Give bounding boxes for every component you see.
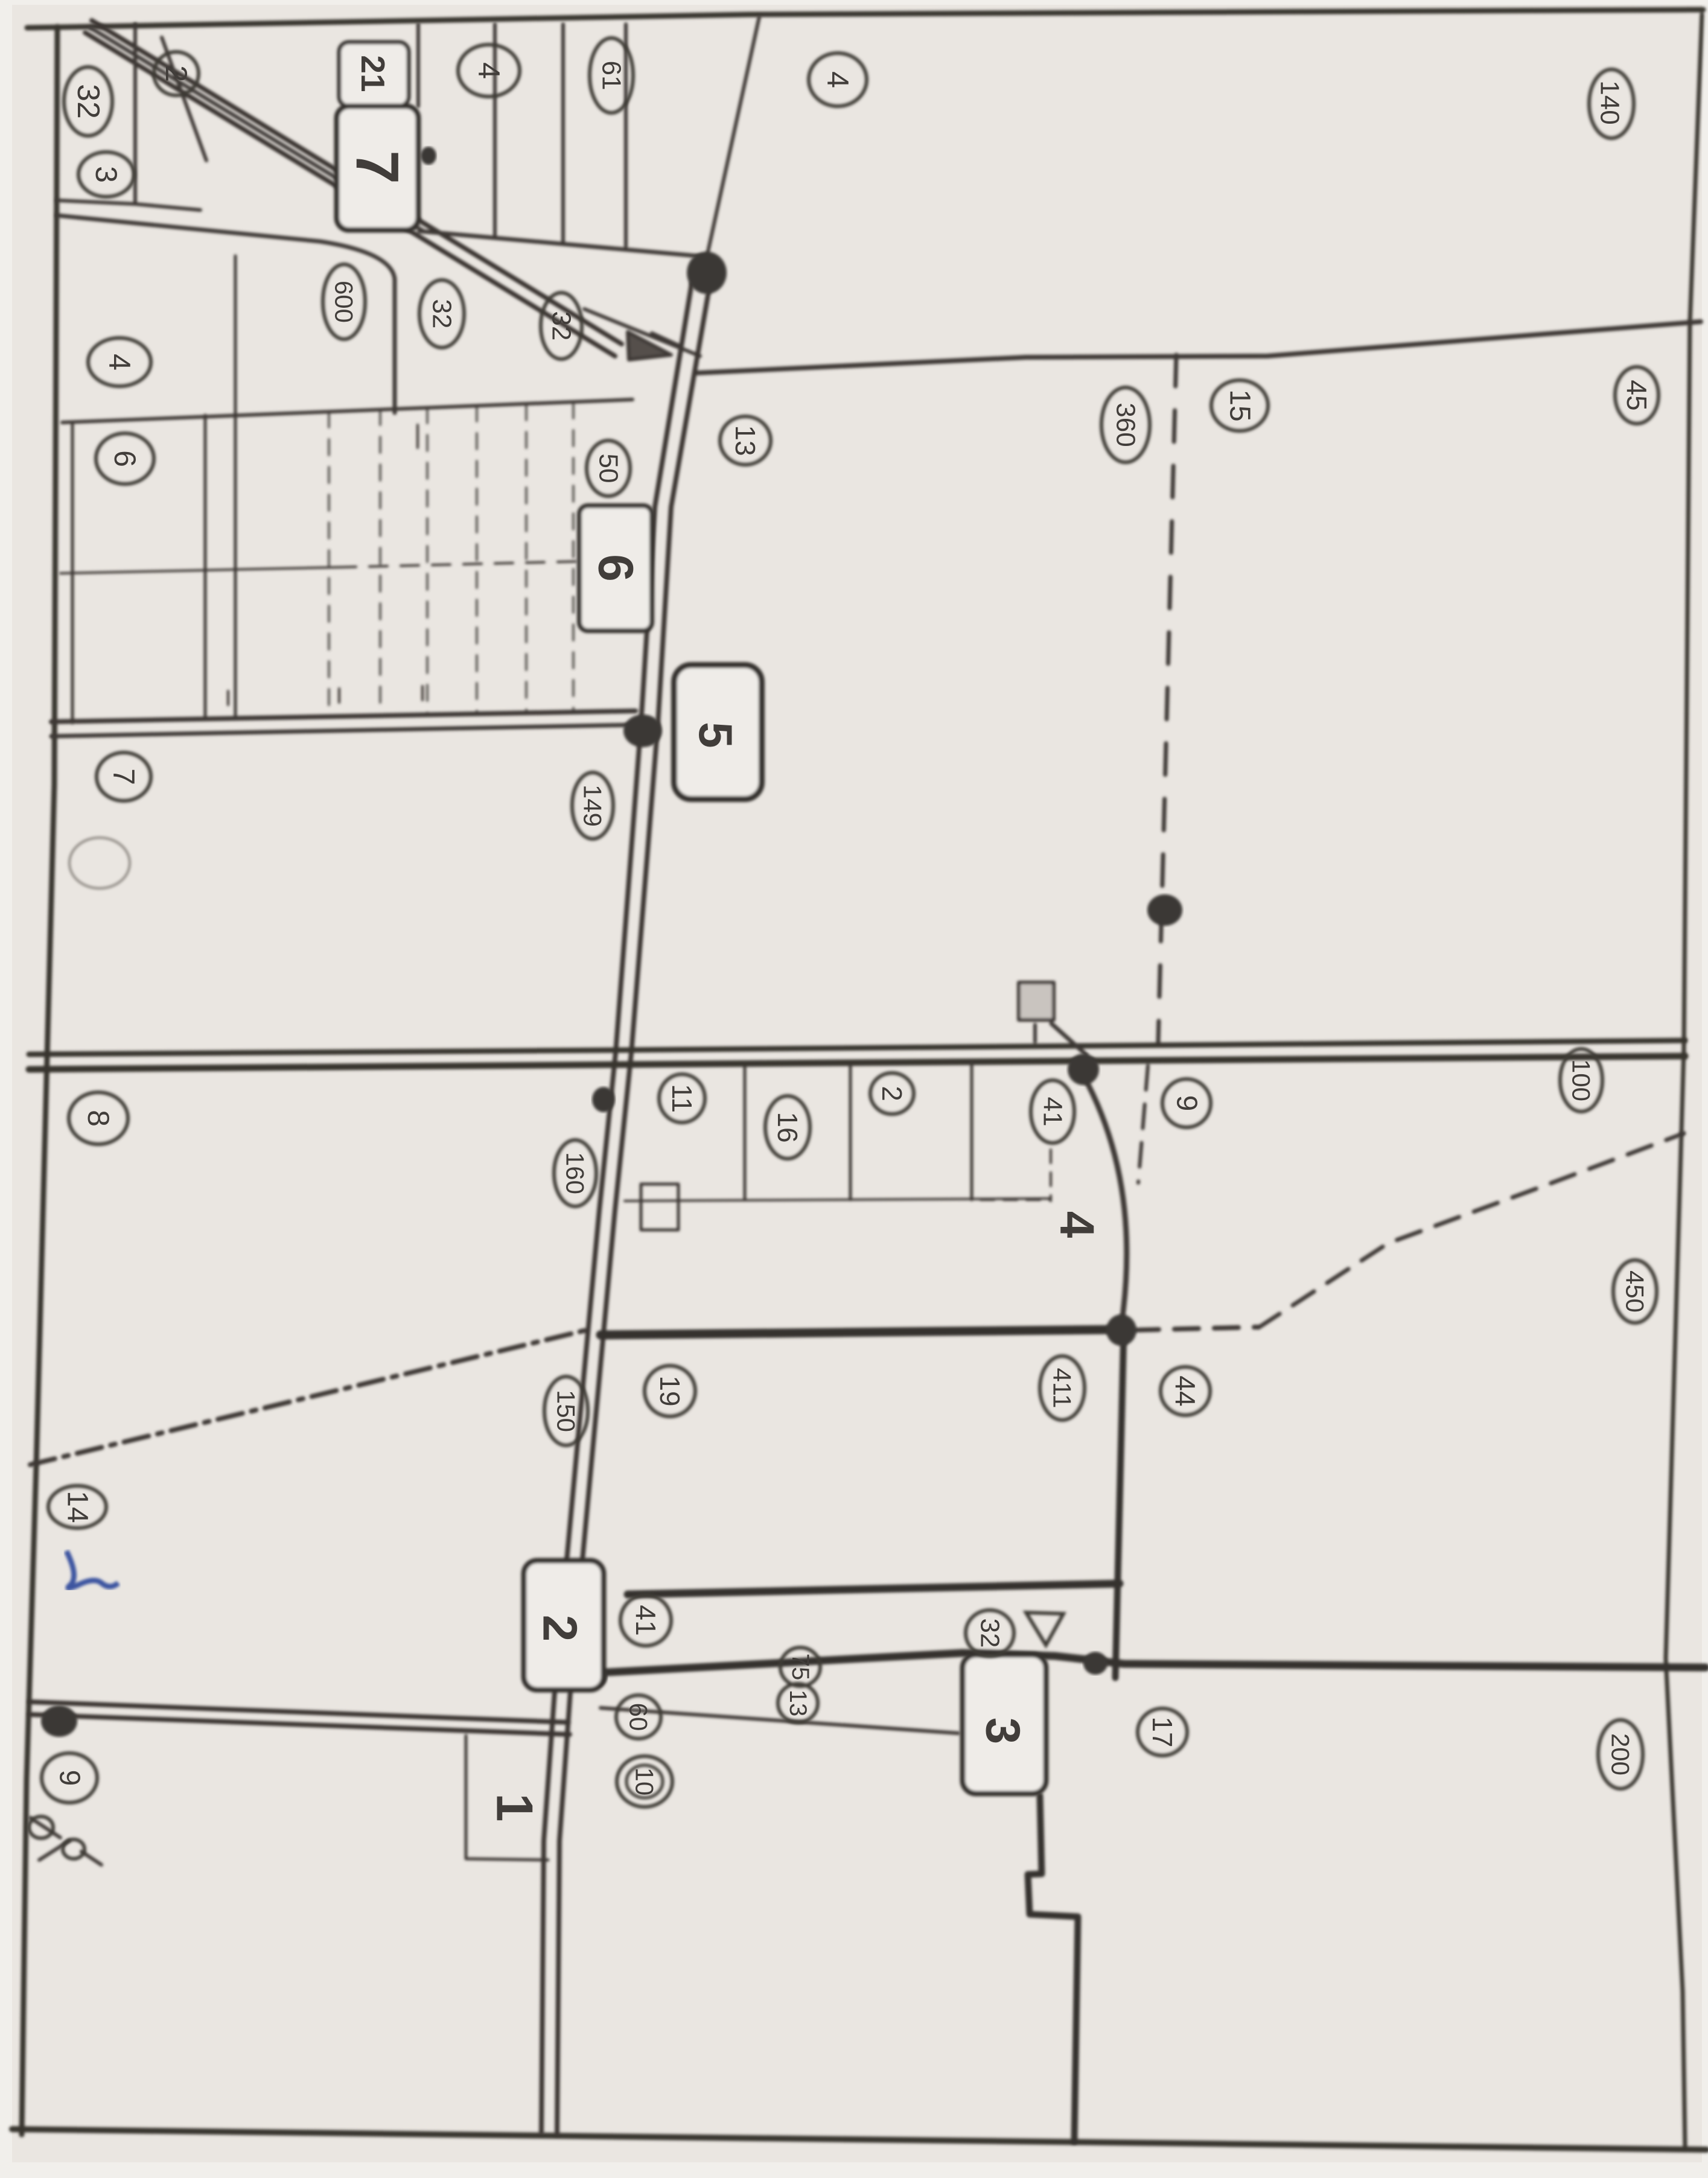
svg-text:11: 11 xyxy=(666,1084,698,1113)
svg-text:32: 32 xyxy=(975,1619,1005,1648)
svg-text:32: 32 xyxy=(547,311,576,341)
svg-text:100: 100 xyxy=(1567,1059,1596,1101)
svg-text:6: 6 xyxy=(588,554,643,582)
svg-text:2: 2 xyxy=(534,1615,587,1642)
svg-text:13: 13 xyxy=(785,1690,811,1717)
svg-text:3: 3 xyxy=(89,166,123,183)
svg-text:2: 2 xyxy=(159,65,193,82)
svg-text:17: 17 xyxy=(1147,1716,1178,1747)
svg-text:5: 5 xyxy=(689,722,742,748)
svg-text:9: 9 xyxy=(54,1770,86,1786)
svg-text:149: 149 xyxy=(579,785,607,827)
svg-text:10: 10 xyxy=(631,1768,659,1796)
svg-text:4: 4 xyxy=(472,62,506,79)
svg-text:600: 600 xyxy=(330,281,358,323)
svg-text:9: 9 xyxy=(1171,1095,1203,1112)
svg-text:32: 32 xyxy=(427,299,457,329)
svg-text:7: 7 xyxy=(107,768,141,785)
svg-text:3: 3 xyxy=(977,1718,1030,1745)
svg-text:75: 75 xyxy=(787,1654,814,1681)
svg-text:4: 4 xyxy=(103,354,136,371)
svg-text:15: 15 xyxy=(1224,389,1256,421)
svg-text:200: 200 xyxy=(1607,1733,1635,1775)
svg-text:150: 150 xyxy=(552,1390,581,1432)
svg-text:4: 4 xyxy=(821,71,855,88)
svg-text:411: 411 xyxy=(1048,1368,1077,1409)
svg-text:13: 13 xyxy=(730,425,761,456)
svg-text:8: 8 xyxy=(81,1110,115,1127)
svg-text:21: 21 xyxy=(354,55,392,92)
svg-text:2: 2 xyxy=(876,1086,908,1101)
svg-text:160: 160 xyxy=(561,1152,590,1194)
svg-text:16: 16 xyxy=(772,1112,803,1142)
svg-text:60: 60 xyxy=(625,1703,653,1731)
svg-text:450: 450 xyxy=(1621,1270,1649,1313)
svg-text:44: 44 xyxy=(1170,1375,1201,1406)
svg-text:4: 4 xyxy=(1051,1211,1104,1238)
svg-text:14: 14 xyxy=(62,1491,94,1523)
svg-text:41: 41 xyxy=(1038,1097,1068,1127)
svg-text:6: 6 xyxy=(108,450,142,467)
svg-text:19: 19 xyxy=(654,1375,686,1406)
svg-text:61: 61 xyxy=(597,61,626,91)
svg-text:50: 50 xyxy=(594,454,623,483)
svg-text:360: 360 xyxy=(1111,403,1141,447)
svg-text:1: 1 xyxy=(486,1793,543,1821)
svg-text:41: 41 xyxy=(630,1605,661,1635)
svg-text:45: 45 xyxy=(1621,380,1652,410)
svg-text:140: 140 xyxy=(1595,80,1625,124)
svg-text:7: 7 xyxy=(343,150,411,184)
svg-text:32: 32 xyxy=(71,84,106,119)
